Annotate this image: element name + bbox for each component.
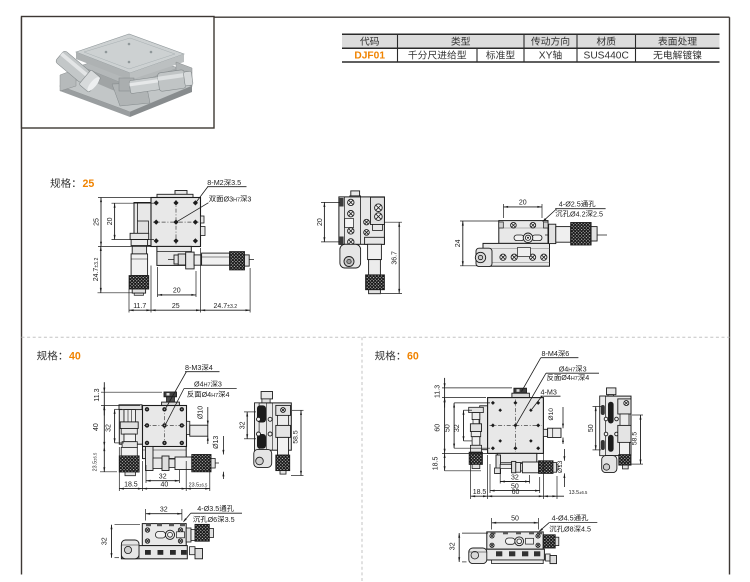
svg-text:23.5: 23.5 <box>93 461 99 472</box>
svg-text:SUS440C: SUS440C <box>584 51 629 62</box>
svg-text:±6.5: ±6.5 <box>199 482 208 487</box>
svg-text:Ø4.2: Ø4.2 <box>570 209 586 218</box>
svg-text:Ø6: Ø6 <box>208 515 218 524</box>
svg-text:XY: XY <box>539 51 553 62</box>
svg-text:60: 60 <box>407 351 419 363</box>
svg-text:8-M4: 8-M4 <box>542 349 558 358</box>
svg-text:4.5: 4.5 <box>581 525 591 534</box>
svg-text:Ø4: Ø4 <box>559 364 569 373</box>
svg-text:H7: H7 <box>204 383 211 389</box>
svg-text:50: 50 <box>511 516 519 523</box>
svg-text:40: 40 <box>69 351 81 363</box>
svg-text:50: 50 <box>588 424 595 432</box>
svg-text:32: 32 <box>159 474 167 481</box>
svg-text:Ø13: Ø13 <box>213 436 220 449</box>
svg-text:4: 4 <box>226 390 230 399</box>
svg-text:3: 3 <box>247 194 251 203</box>
svg-text:20: 20 <box>107 217 114 225</box>
svg-text:±6.5: ±6.5 <box>93 452 98 461</box>
svg-text:20: 20 <box>173 288 181 295</box>
svg-text:24.7: 24.7 <box>93 268 100 282</box>
svg-text:32: 32 <box>102 537 109 545</box>
svg-text:3: 3 <box>218 380 222 389</box>
svg-text:4-Ø4.5: 4-Ø4.5 <box>552 513 574 522</box>
svg-text:58.5: 58.5 <box>632 432 639 445</box>
svg-text:3.5: 3.5 <box>225 515 235 524</box>
svg-text:4-Ø2.5: 4-Ø2.5 <box>559 200 581 209</box>
svg-text:25: 25 <box>83 178 95 190</box>
svg-text:4-Ø3.5: 4-Ø3.5 <box>197 504 219 513</box>
svg-text:32: 32 <box>240 421 247 429</box>
svg-text:60: 60 <box>435 424 442 432</box>
svg-text:Ø3: Ø3 <box>224 194 234 203</box>
svg-text:3.5: 3.5 <box>231 178 241 187</box>
svg-text:4: 4 <box>209 363 213 372</box>
svg-text:8-M2: 8-M2 <box>207 178 223 187</box>
svg-text:11.7: 11.7 <box>133 303 146 310</box>
svg-text:11.3: 11.3 <box>434 385 441 398</box>
svg-text:32: 32 <box>511 474 519 481</box>
svg-text:DJF01: DJF01 <box>354 51 385 62</box>
svg-text:60: 60 <box>512 489 520 496</box>
svg-text:8-M3: 8-M3 <box>185 363 201 372</box>
svg-text:40: 40 <box>160 481 168 488</box>
svg-text:2.5: 2.5 <box>593 209 603 218</box>
svg-text:24: 24 <box>455 239 462 247</box>
svg-text:24.7: 24.7 <box>214 303 228 310</box>
svg-text:Ø4: Ø4 <box>202 390 212 399</box>
svg-text:±6.5: ±6.5 <box>579 490 588 495</box>
svg-text:Ø4: Ø4 <box>561 373 571 382</box>
svg-text:H7: H7 <box>571 376 578 382</box>
svg-text:20: 20 <box>317 218 324 226</box>
svg-text:3: 3 <box>583 364 587 373</box>
svg-text:32: 32 <box>454 424 461 432</box>
svg-text:40: 40 <box>93 423 100 431</box>
svg-text:50: 50 <box>444 424 451 432</box>
svg-text:32: 32 <box>449 542 456 550</box>
svg-text:6: 6 <box>565 349 569 358</box>
svg-text:13.5: 13.5 <box>569 490 580 496</box>
svg-text:32: 32 <box>106 424 113 432</box>
svg-text:11.3: 11.3 <box>94 388 101 401</box>
svg-text:Ø10: Ø10 <box>197 406 204 419</box>
svg-text:4: 4 <box>585 373 589 382</box>
svg-text:25: 25 <box>93 218 100 226</box>
svg-text:36.7: 36.7 <box>392 251 399 265</box>
svg-text:25: 25 <box>172 303 180 310</box>
svg-text:Ø13: Ø13 <box>557 460 564 473</box>
svg-text:18.5: 18.5 <box>473 489 487 496</box>
svg-text:Ø8: Ø8 <box>564 525 574 534</box>
svg-text:58.5: 58.5 <box>292 430 299 443</box>
svg-text:Ø4: Ø4 <box>194 380 204 389</box>
svg-text:Ø10: Ø10 <box>548 408 555 421</box>
svg-text:32: 32 <box>160 507 168 514</box>
svg-text:±3.2: ±3.2 <box>227 304 237 310</box>
svg-text:20: 20 <box>519 200 527 207</box>
svg-text:±3.2: ±3.2 <box>94 258 100 268</box>
svg-text:18.5: 18.5 <box>124 481 138 488</box>
svg-text:4-M3: 4-M3 <box>541 388 557 397</box>
svg-text:H7: H7 <box>211 393 218 399</box>
svg-text:H7: H7 <box>233 197 240 203</box>
svg-text:18.5: 18.5 <box>432 456 439 470</box>
svg-text:23.5: 23.5 <box>189 482 200 488</box>
